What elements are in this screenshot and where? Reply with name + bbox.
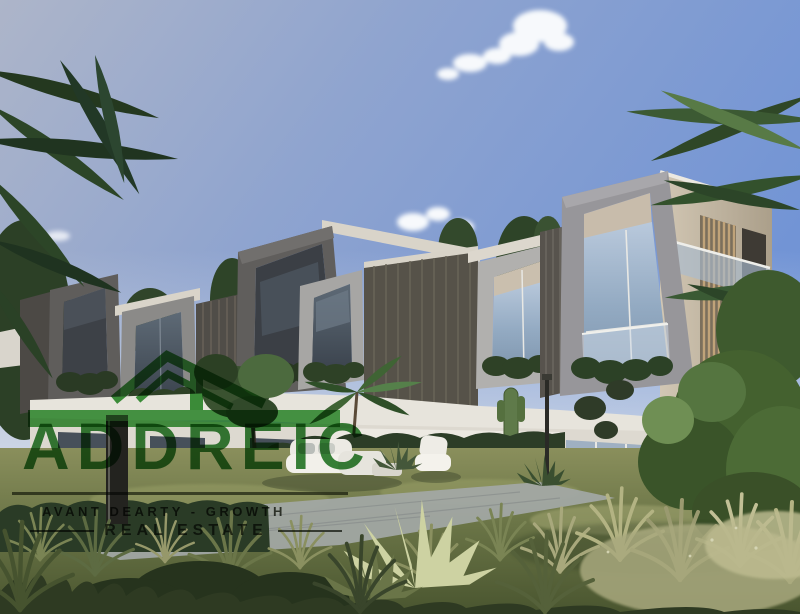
architectural-render-photo: ADDREIC AVANT DEARTY - GROWTH REAL ESTAT… (0, 0, 800, 614)
unit-frame-4 (298, 270, 365, 390)
louver-wall-b (364, 246, 478, 408)
unit-frame-1 (48, 274, 121, 404)
light-bollard (106, 415, 128, 524)
scene-drawing (0, 0, 800, 614)
